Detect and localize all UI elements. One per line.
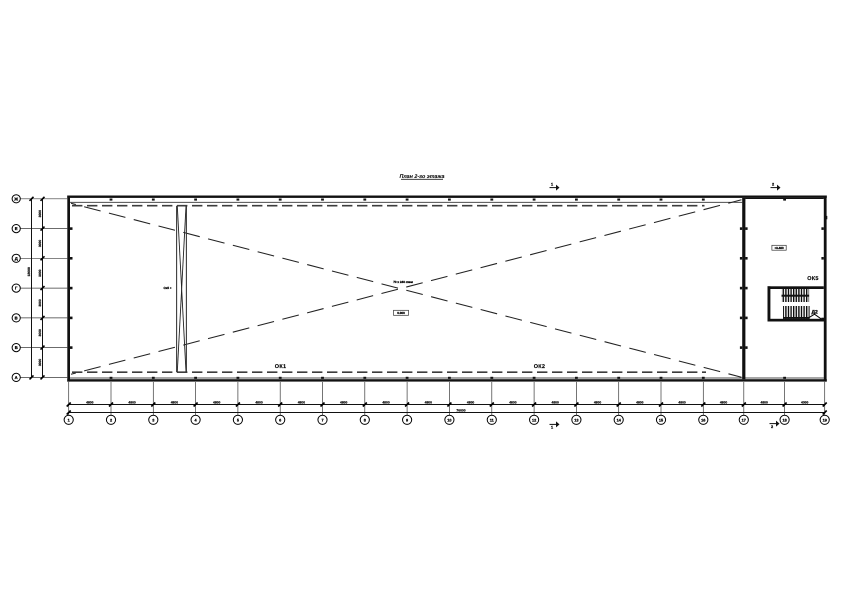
- svg-text:6: 6: [279, 418, 281, 422]
- svg-text:4800: 4800: [171, 401, 179, 405]
- svg-text:11: 11: [490, 418, 494, 422]
- svg-text:4800: 4800: [636, 401, 644, 405]
- svg-text:0.000: 0.000: [397, 311, 405, 315]
- svg-text:3000: 3000: [38, 329, 42, 337]
- svg-text:А: А: [15, 375, 18, 380]
- svg-text:Б: Б: [15, 345, 18, 350]
- svg-text:2: 2: [771, 425, 773, 429]
- svg-text:3000: 3000: [38, 210, 42, 218]
- svg-text:+3.460: +3.460: [774, 246, 784, 250]
- svg-text:ОК1: ОК1: [275, 364, 287, 370]
- svg-text:ОК2: ОК2: [534, 364, 546, 370]
- svg-text:10: 10: [447, 418, 451, 422]
- svg-text:4800: 4800: [128, 401, 136, 405]
- svg-text:2: 2: [110, 418, 112, 422]
- svg-text:9: 9: [406, 418, 408, 422]
- svg-text:16: 16: [701, 418, 705, 422]
- svg-text:4800: 4800: [382, 401, 390, 405]
- svg-text:18000: 18000: [27, 267, 31, 277]
- svg-text:13: 13: [574, 418, 578, 422]
- svg-text:4800: 4800: [467, 401, 475, 405]
- svg-text:17: 17: [742, 418, 746, 422]
- svg-text:4800: 4800: [761, 401, 769, 405]
- svg-text:4800: 4800: [340, 401, 348, 405]
- svg-text:7: 7: [321, 418, 323, 422]
- svg-text:15: 15: [659, 418, 663, 422]
- svg-text:3000: 3000: [38, 240, 42, 248]
- svg-text:12: 12: [532, 418, 536, 422]
- svg-text:Сх5 +: Сх5 +: [164, 286, 172, 290]
- svg-text:4800: 4800: [552, 401, 560, 405]
- svg-text:19: 19: [823, 418, 827, 422]
- svg-text:4800: 4800: [720, 401, 728, 405]
- svg-text:3000: 3000: [38, 269, 42, 277]
- svg-text:4000: 4000: [801, 401, 809, 405]
- svg-text:70 х 240 схем: 70 х 240 схем: [393, 280, 413, 284]
- svg-text:Е: Е: [15, 226, 18, 231]
- svg-text:Ж: Ж: [13, 196, 18, 201]
- svg-text:3000: 3000: [38, 299, 42, 307]
- svg-text:4800: 4800: [255, 401, 263, 405]
- svg-text:1: 1: [68, 418, 70, 422]
- svg-text:4800: 4800: [509, 401, 517, 405]
- svg-text:4800: 4800: [425, 401, 433, 405]
- svg-text:4800: 4800: [594, 401, 602, 405]
- svg-text:Д2: Д2: [812, 310, 819, 316]
- svg-text:4800: 4800: [86, 401, 94, 405]
- svg-text:3: 3: [152, 418, 154, 422]
- svg-text:5: 5: [237, 418, 239, 422]
- svg-text:4800: 4800: [213, 401, 221, 405]
- svg-text:2: 2: [772, 183, 774, 187]
- svg-text:18: 18: [782, 418, 786, 422]
- svg-text:4800: 4800: [678, 401, 686, 405]
- svg-text:76000: 76000: [456, 408, 465, 412]
- svg-text:ОК5: ОК5: [807, 276, 819, 282]
- svg-text:В: В: [15, 315, 18, 320]
- svg-text:1: 1: [551, 426, 553, 430]
- svg-text:1: 1: [551, 183, 553, 187]
- svg-text:3000: 3000: [38, 359, 42, 367]
- svg-text:4800: 4800: [298, 401, 306, 405]
- svg-text:Д: Д: [15, 256, 18, 261]
- svg-text:8: 8: [364, 418, 366, 422]
